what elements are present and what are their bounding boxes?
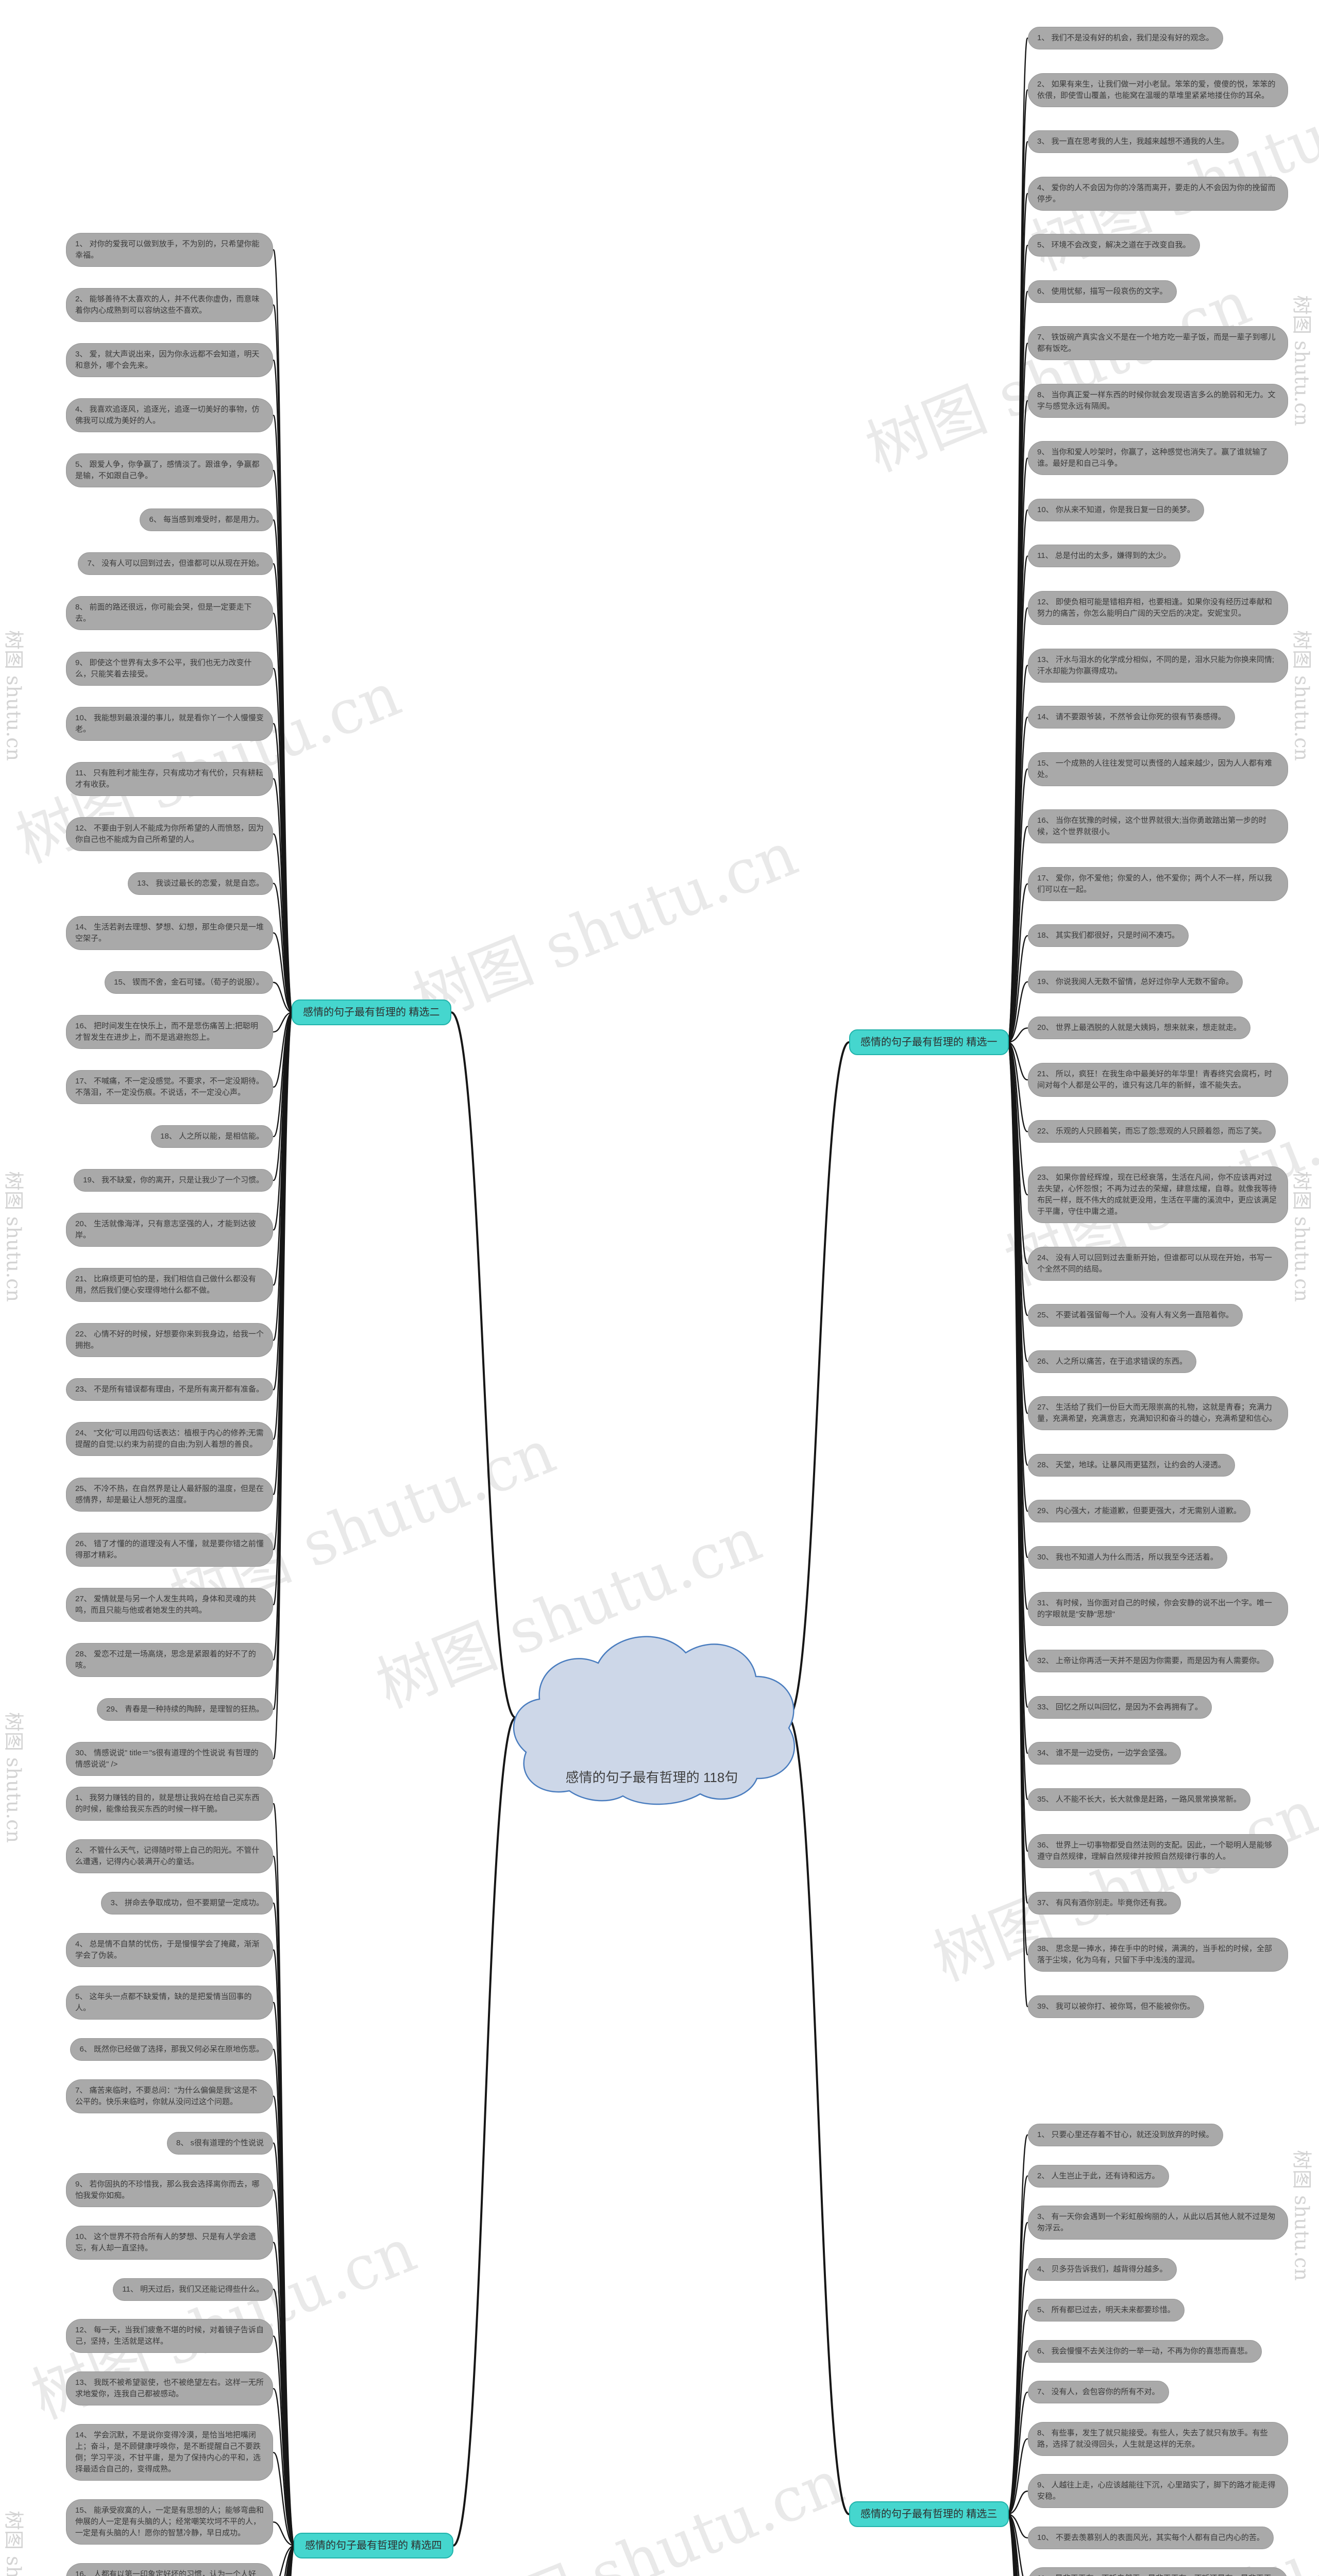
mindmap-node-text: 9、 人越往上走，心应该越能往下沉，心里踏实了，脚下的路才能走得安稳。 [1037,2481,1276,2501]
mindmap-node-text: 2、 不管什么天气，记得随时带上自己的阳光。不管什么遭遇，记得内心装满开心的童话… [75,1846,260,1866]
mindmap-node-text: 14、 请不要跟爷装，不然爷会让你死的很有节奏感得。 [1037,713,1226,721]
mindmap-node-text: 21、 所以，疯狂！在我生命中最美好的年华里！青春终究会腐朽，时间对每个人都是公… [1037,1070,1272,1090]
mindmap-node-text: 25、 不要试着强留每一个人。没有人有义务一直陪着你。 [1037,1311,1233,1319]
mindmap-node-text: 17、 不喊痛，不一定没感觉。不要求，不一定没期待。不落泪，不一定没伤痕。不说话… [75,1077,264,1097]
mindmap-node-text: 26、 人之所以痛苦，在于追求错误的东西。 [1037,1357,1187,1366]
mindmap-node-text: 8、 前面的路还很远，你可能会哭，但是一定要走下去。 [75,603,252,623]
mindmap-node[interactable]: 10、 这个世界不符合所有人的梦想、只是有人学会遗忘，有人却一直坚持。 [66,2226,273,2260]
mindmap-node[interactable]: 5、 所有都已过去，明天未来都要珍惜。 [1028,2299,1185,2321]
mindmap-node[interactable]: 15、 锲而不舍，金石可镂。（荀子的说服）。 [105,971,273,994]
mindmap-node[interactable]: 21、 所以，疯狂！在我生命中最美好的年华里！青春终究会腐朽，时间对每个人都是公… [1028,1063,1288,1097]
watermark: 树图 shutu.cn [2,630,30,761]
mindmap-node[interactable]: 19、 你说我阅人无数不留情，总好过你孕人无数不留命。 [1028,971,1243,993]
mindmap-node[interactable]: 16、 人都有以第一印象定好坏的习惯，认为一个人好时，就会爱屋及乌，认为一个人不… [66,2563,273,2576]
mindmap-node[interactable]: 10、 你从来不知道，你是我日复一日的美梦。 [1028,499,1204,521]
branch-node-best3[interactable]: 感情的句子最有哲理的 精选三 [849,2501,1009,2527]
mindmap-node-text: 23、 不是所有错误都有理由，不是所有离开都有准备。 [75,1385,264,1394]
mindmap-node-text: 9、 当你和爱人吵架时，你赢了，这种感觉也消失了。赢了谁就输了谁。最好是和自己斗… [1037,448,1268,468]
mindmap-node-text: 7、 痛苦来临时，不要总问："为什么偏偏是我"这是不公平的。快乐来临时，你就从没… [75,2086,257,2106]
mindmap-node[interactable]: 31、 有时候，当你面对自己的时候，你会安静的说不出一个字。唯一的字眼就是"安静… [1028,1592,1288,1626]
mindmap-node-text: 19、 我不缺爱，你的离开，只是让我少了一个习惯。 [83,1176,264,1184]
mindmap-node-text: 34、 谁不是一边受伤，一边学会坚强。 [1037,1749,1172,1757]
mindmap-node-text: 6、 我会慢慢不去关注你的一举一动，不再为你的喜悲而喜悲。 [1037,2347,1253,2355]
mindmap-node[interactable]: 4、 总是情不自禁的忧伤，于是慢慢学会了掩藏，渐渐学会了伪装。 [66,1933,273,1967]
branch-group-best3: 1、 只要心里还存着不甘心，就还没到放弃的时候。 2、 人生岂止于此，还有诗和远… [1028,2124,1288,2576]
mindmap-node[interactable]: 3、 拼命去争取成功，但不要期望一定成功。 [101,1892,273,1914]
mindmap-node-text: 16、 当你在犹豫的时候，这个世界就很大;当你勇敢踏出第一步的时候，这个世界就很… [1037,816,1266,836]
mindmap-node-text: 14、 生活若剥去理想、梦想、幻想，那生命便只是一堆空架子。 [75,923,264,943]
mindmap-node-text: 39、 我可以被你打、被你骂，但不能被你伤。 [1037,2002,1195,2011]
mindmap-node[interactable]: 12、 即使负相可能是错相弃相，也要相逢。如果你没有经历过奉献和努力的痛苦，你怎… [1028,591,1288,625]
mindmap-node-text: 1、 只要心里还存着不甘心，就还没到放弃的时候。 [1037,2130,1214,2139]
mindmap-node[interactable]: 22、 心情不好的时候，好想要你来到我身边，给我一个拥抱。 [66,1323,273,1357]
mindmap-node-text: 12、 不要由于别人不能成为你所希望的人而愤怒，因为你自己也不能成为自己所希望的… [75,824,264,844]
mindmap-node[interactable]: 12、 每一天，当我们疲惫不堪的时候，对着镜子告诉自己，坚持，生活就是这样。 [66,2319,273,2353]
mindmap-canvas: 树图 shutu.cn树图 shutu.cn树图 shutu.cn树图 shut… [0,0,1319,2576]
mindmap-node[interactable]: 36、 世界上一切事物都受自然法则的支配。因此，一个聪明人是能够遵守自然规律，理… [1028,1834,1288,1868]
mindmap-node[interactable]: 7、 没有人，会包容你的所有不对。 [1028,2381,1169,2403]
mindmap-node[interactable]: 27、 爱情就是与另一个人发生共鸣，身体和灵魂的共鸣，而且只能与他或者她发生的共… [66,1588,273,1622]
mindmap-node[interactable]: 14、 请不要跟爷装，不然爷会让你死的很有节奏感得。 [1028,706,1235,728]
mindmap-node[interactable]: 8、 当你真正爱一样东西的时候你就会发现语言多么的脆弱和无力。文字与感觉永远有隔… [1028,384,1288,418]
mindmap-node[interactable]: 18、 人之所以能，是相信能。 [151,1125,273,1148]
mindmap-node-text: 25、 不冷不热，在自然界是让人最舒服的温度，但是在感情界，却是最让人想死的温度… [75,1484,264,1504]
mindmap-node-text: 19、 你说我阅人无数不留情，总好过你孕人无数不留命。 [1037,977,1233,986]
mindmap-node-text: 32、 上帝让你再活一天并不是因为你需要，而是因为有人需要你。 [1037,1656,1264,1665]
mindmap-node[interactable]: 2、 不管什么天气，记得随时带上自己的阳光。不管什么遭遇，记得内心装满开心的童话… [66,1839,273,1873]
mindmap-node[interactable]: 16、 把时间发生在快乐上，而不是悲伤痛苦上;把聪明才智发生在进步上，而不是逃避… [66,1015,273,1049]
mindmap-node-text: 24、 "文化"可以用四句话表达：植根于内心的修养;无需提醒的自觉;以约束为前提… [75,1429,264,1449]
mindmap-node[interactable]: 10、 我能想到最浪漫的事儿，就是看你丫一个人慢慢变老。 [66,707,273,741]
mindmap-node[interactable]: 34、 谁不是一边受伤，一边学会坚强。 [1028,1742,1181,1765]
mindmap-node-text: 27、 爱情就是与另一个人发生共鸣，身体和灵魂的共鸣，而且只能与他或者她发生的共… [75,1595,256,1615]
branch-group-best4: 1、 我努力赚钱的目的，就是想让我妈在给自己买东西的时候，能像给我买东西的时候一… [66,1787,273,2576]
mindmap-node-text: 5、 这年头一点都不缺爱情，缺的是把爱情当回事的人。 [75,1992,252,2012]
mindmap-node-text: 22、 心情不好的时候，好想要你来到我身边，给我一个拥抱。 [75,1330,264,1350]
mindmap-node[interactable]: 11、 只有胜利才能生存，只有成功才有代价，只有耕耘才有收获。 [66,762,273,796]
mindmap-node-text: 8、 s很有道理的个性说说 [176,2139,264,2147]
mindmap-node[interactable]: 8、 s很有道理的个性说说 [167,2132,273,2155]
branch-node-best2[interactable]: 感情的句子最有哲理的 精选二 [292,999,451,1025]
mindmap-node[interactable]: 24、 没有人可以回到过去重新开始，但谁都可以从现在开始，书写一个全然不同的结局… [1028,1247,1288,1281]
mindmap-node-text: 38、 思念是一捧水，捧在手中的时候，满满的，当手松的时候，全部落于尘埃，化为乌… [1037,1944,1272,1964]
mindmap-node[interactable]: 7、 痛苦来临时，不要总问："为什么偏偏是我"这是不公平的。快乐来临时，你就从没… [66,2079,273,2113]
mindmap-node-text: 10、 这个世界不符合所有人的梦想、只是有人学会遗忘，有人却一直坚持。 [75,2232,256,2252]
mindmap-node[interactable]: 3、 有一天你会遇到一个彩虹般绚丽的人，从此以后其他人就不过是匆匆浮云。 [1028,2206,1288,2240]
mindmap-node[interactable]: 38、 思念是一捧水，捧在手中的时候，满满的，当手松的时候，全部落于尘埃，化为乌… [1028,1938,1288,1972]
mindmap-node-text: 27、 生活给了我们一份巨大而无限崇高的礼物，这就是青春；充满力量，充满希望，充… [1037,1403,1277,1423]
mindmap-node-text: 6、 既然你已经做了选择，那我又何必呆在原地伤悲。 [79,2045,264,2054]
mindmap-node[interactable]: 15、 能承受寂寞的人，一定是有思想的人；能够弯曲和伸展的人一定是有头脑的人；经… [66,2499,273,2545]
mindmap-node-text: 13、 我谈过最长的恋爱，就是自恋。 [137,879,264,888]
watermark: 树图 shutu.cn [2,1712,30,1843]
mindmap-node-text: 7、 没有人，会包容你的所有不对。 [1037,2387,1160,2396]
mindmap-node[interactable]: 13、 我既不被希望驱使，也不被绝望左右。这样一无所求地爱你，连我自己都被感动。 [66,2371,273,2405]
mindmap-node-text: 36、 世界上一切事物都受自然法则的支配。因此，一个聪明人是能够遵守自然规律，理… [1037,1841,1272,1861]
mindmap-node[interactable]: 1、 对你的爱我可以做到放手，不为别的，只希望你能幸福。 [66,233,273,267]
mindmap-node-text: 21、 比麻烦更可怕的是，我们相信自己做什么都没有用，然后我们便心安理得地什么都… [75,1275,256,1295]
mindmap-node[interactable]: 5、 环境不会改变，解决之道在于改变自我。 [1028,234,1200,257]
mindmap-node-text: 29、 内心强大，才能道歉，但要更强大，才无需别人道歉。 [1037,1506,1241,1515]
mindmap-node-text: 4、 爱你的人不会因为你的冷落而离开，要走的人不会因为你的挽留而停步。 [1037,183,1276,204]
mindmap-node[interactable]: 20、 生活就像海洋，只有意志坚强的人，才能到达彼岸。 [66,1213,273,1247]
mindmap-node[interactable]: 25、 不要试着强留每一个人。没有人有义务一直陪着你。 [1028,1304,1243,1327]
mindmap-node[interactable]: 17、 不喊痛，不一定没感觉。不要求，不一定没期待。不落泪，不一定没伤痕。不说话… [66,1070,273,1104]
mindmap-node[interactable]: 14、 生活若剥去理想、梦想、幻想，那生命便只是一堆空架子。 [66,916,273,950]
mindmap-node[interactable]: 13、 汗水与泪水的化学成分相似，不同的是，泪水只能为你换来同情;汗水却能为你赢… [1028,649,1288,683]
mindmap-node[interactable]: 35、 人不能不长大，长大就像是赶路，一路风景常换常新。 [1028,1788,1250,1811]
mindmap-node[interactable]: 6、 使用忧郁，描写一段哀伤的文字。 [1028,280,1177,303]
mindmap-node[interactable]: 25、 不冷不热，在自然界是让人最舒服的温度，但是在感情界，却是最让人想死的温度… [66,1478,273,1512]
mindmap-node[interactable]: 9、 人越往上走，心应该越能往下沉，心里踏实了，脚下的路才能走得安稳。 [1028,2474,1288,2508]
mindmap-node-text: 8、 当你真正爱一样东西的时候你就会发现语言多么的脆弱和无力。文字与感觉永远有隔… [1037,391,1276,411]
watermark: 树图 shutu.cn [2,1171,30,1302]
mindmap-node-text: 6、 使用忧郁，描写一段哀伤的文字。 [1037,287,1168,296]
mindmap-node[interactable]: 33、 回忆之所以叫回忆，是因为不会再拥有了。 [1028,1696,1212,1719]
mindmap-node[interactable]: 23、 如果你曾经辉煌，现在已经衰落，生活在凡间，你不应该再对过去失望，心怀怨恨… [1028,1166,1288,1223]
mindmap-node[interactable]: 4、 我喜欢追逐风，追逐光，追逐一切美好的事物，仿佛我可以成为美好的人。 [66,398,273,432]
mindmap-node[interactable]: 4、 爱你的人不会因为你的冷落而离开，要走的人不会因为你的挽留而停步。 [1028,177,1288,211]
mindmap-node[interactable]: 10、 不要去羡慕别人的表面风光，其实每个人都有自己内心的苦。 [1028,2527,1274,2549]
mindmap-node-text: 18、 人之所以能，是相信能。 [160,1132,264,1141]
mindmap-node-text: 16、 人都有以第一印象定好坏的习惯，认为一个人好时，就会爱屋及乌，认为一个人不… [75,2570,256,2576]
mindmap-node-text: 3、 有一天你会遇到一个彩虹般绚丽的人，从此以后其他人就不过是匆匆浮云。 [1037,2212,1276,2232]
mindmap-node-text: 10、 不要去羡慕别人的表面风光，其实每个人都有自己内心的苦。 [1037,2533,1264,2542]
mindmap-node[interactable]: 27、 生活给了我们一份巨大而无限崇高的礼物，这就是青春；充满力量，充满希望，充… [1028,1396,1288,1430]
mindmap-node[interactable]: 24、 "文化"可以用四句话表达：植根于内心的修养;无需提醒的自觉;以约束为前提… [66,1422,273,1456]
mindmap-node-text: 11、 是非天天有，不听自然无，是非天天有，不听还是有，是非天天有，看你怎么办? [1037,2574,1272,2576]
mindmap-node[interactable]: 28、 爱恋不过是一场高烧，思念是紧跟着的好不了的咳。 [66,1643,273,1677]
mindmap-node[interactable]: 11、 是非天天有，不听自然无，是非天天有，不听还是有，是非天天有，看你怎么办? [1028,2567,1288,2576]
mindmap-node-text: 12、 每一天，当我们疲惫不堪的时候，对着镜子告诉自己，坚持，生活就是这样。 [75,2326,264,2346]
mindmap-node[interactable]: 7、 铁饭碗产真实含义不是在一个地方吃一辈子饭，而是一辈子到哪儿都有饭吃。 [1028,326,1288,360]
mindmap-node-text: 5、 跟爱人争，你争赢了，感情淡了。跟谁争，争赢都是输，不如跟自己争。 [75,460,260,480]
branch-node-best1[interactable]: 感情的句子最有哲理的 精选一 [849,1029,1009,1055]
mindmap-node[interactable]: 18、 其实我们都很好，只是时间不凑巧。 [1028,924,1189,947]
mindmap-node-text: 18、 其实我们都很好，只是时间不凑巧。 [1037,931,1179,940]
mindmap-node[interactable]: 3、 爱，就大声说出来，因为你永远都不会知道，明天和意外，哪个会先来。 [66,343,273,377]
mindmap-node-text: 7、 没有人可以回到过去，但谁都可以从现在开始。 [87,559,264,568]
mindmap-node-text: 10、 我能想到最浪漫的事儿，就是看你丫一个人慢慢变老。 [75,714,264,734]
mindmap-node[interactable]: 5、 跟爱人争，你争赢了，感情淡了。跟谁争，争赢都是输，不如跟自己争。 [66,453,273,487]
watermark: 树图 shutu.cn [1290,295,1318,426]
mindmap-node[interactable]: 23、 不是所有错误都有理由，不是所有离开都有准备。 [66,1378,273,1401]
mindmap-node-text: 20、 生活就像海洋，只有意志坚强的人，才能到达彼岸。 [75,1219,256,1240]
mindmap-node-text: 11、 明天过后，我们又还能记得些什么。 [122,2285,264,2294]
mindmap-node-text: 15、 能承受寂寞的人，一定是有思想的人；能够弯曲和伸展的人一定是有头脑的人；经… [75,2506,264,2537]
mindmap-node-text: 28、 爱恋不过是一场高烧，思念是紧跟着的好不了的咳。 [75,1650,256,1670]
mindmap-node[interactable]: 17、 爱你，你不爱他；你爱的人，他不爱你；两个人不一样，所以我们可以在一起。 [1028,867,1288,901]
mindmap-node-text: 13、 汗水与泪水的化学成分相似，不同的是，泪水只能为你换来同情;汗水却能为你赢… [1037,655,1274,675]
mindmap-node[interactable]: 30、 情感说说" title＝"s很有道理的个性说说 有哲理的情感说说" /> [66,1742,273,1776]
branch-group-best2: 1、 对你的爱我可以做到放手，不为别的，只希望你能幸福。 2、 能够善待不太喜欢… [66,233,273,1776]
mindmap-node-text: 2、 能够善待不太喜欢的人，并不代表你虚伪，而意味着你内心成熟到可以容纳这些不喜… [75,295,260,315]
mindmap-node-text: 1、 我努力赚钱的目的，就是想让我妈在给自己买东西的时候，能像给我买东西的时候一… [75,1793,260,1814]
root-node[interactable]: 感情的句子最有哲理的 118句 [508,1627,796,1808]
mindmap-node[interactable]: 8、 有些事，发生了就只能接受。有些人，失去了就只有放手。有些路，选择了就没得回… [1028,2422,1288,2456]
mindmap-node-text: 15、 锲而不舍，金石可镂。（荀子的说服）。 [114,978,264,987]
mindmap-node-text: 4、 总是情不自禁的忧伤，于是慢慢学会了掩藏，渐渐学会了伪装。 [75,1940,260,1960]
mindmap-node[interactable]: 6、 既然你已经做了选择，那我又何必呆在原地伤悲。 [70,2038,273,2061]
mindmap-node-text: 2、 人生岂止于此，还有诗和远方。 [1037,2172,1160,2180]
mindmap-node-text: 7、 铁饭碗产真实含义不是在一个地方吃一辈子饭，而是一辈子到哪儿都有饭吃。 [1037,333,1276,353]
mindmap-node[interactable]: 13、 我谈过最长的恋爱，就是自恋。 [128,872,273,895]
mindmap-node-text: 13、 我既不被希望驱使，也不被绝望左右。这样一无所求地爱你，连我自己都被感动。 [75,2378,264,2398]
mindmap-node[interactable]: 1、 我们不是没有好的机会，我们是没有好的观念。 [1028,27,1223,49]
watermark: 树图 shutu.cn [444,2433,854,2576]
mindmap-node[interactable]: 8、 前面的路还很远，你可能会哭，但是一定要走下去。 [66,596,273,630]
watermark: 树图 shutu.cn [1290,2150,1318,2281]
mindmap-node-text: 9、 即使这个世界有太多不公平，我们也无力改变什么，只能笑着去接受。 [75,658,252,679]
mindmap-node-text: 12、 即使负相可能是错相弃相，也要相逢。如果你没有经历过奉献和努力的痛苦，你怎… [1037,598,1272,618]
mindmap-node[interactable]: 12、 不要由于别人不能成为你所希望的人而愤怒，因为你自己也不能成为自己所希望的… [66,817,273,851]
watermark: 树图 shutu.cn [2,2511,30,2576]
mindmap-node-text: 28、 天堂，地球。让暴风雨更猛烈，让约会的人浸透。 [1037,1461,1226,1469]
mindmap-node[interactable]: 20、 世界上最洒脱的人就是大姨妈，想来就来，想走就走。 [1028,1016,1250,1039]
mindmap-node-text: 23、 如果你曾经辉煌，现在已经衰落，生活在凡间，你不应该再对过去失望，心怀怨恨… [1037,1173,1277,1216]
mindmap-node-text: 10、 你从来不知道，你是我日复一日的美梦。 [1037,505,1195,514]
mindmap-node[interactable]: 39、 我可以被你打、被你骂，但不能被你伤。 [1028,1995,1204,2018]
mindmap-node[interactable]: 3、 我一直在思考我的人生，我越来越想不通我的人生。 [1028,130,1239,153]
mindmap-node[interactable]: 11、 明天过后，我们又还能记得些什么。 [113,2278,273,2301]
mindmap-node[interactable]: 9、 若你固执的不珍惜我，那么我会选择离你而去，哪怕我爱你如痴。 [66,2173,273,2207]
mindmap-node-text: 9、 若你固执的不珍惜我，那么我会选择离你而去，哪怕我爱你如痴。 [75,2180,260,2200]
mindmap-node-text: 31、 有时候，当你面对自己的时候，你会安静的说不出一个字。唯一的字眼就是"安静… [1037,1599,1272,1619]
mindmap-node[interactable]: 37、 有风有酒你别走。毕竟你还有我。 [1028,1892,1181,1914]
mindmap-node-text: 17、 爱你，你不爱他；你爱的人，他不爱你；两个人不一样，所以我们可以在一起。 [1037,874,1272,894]
mindmap-node-text: 24、 没有人可以回到过去重新开始，但谁都可以从现在开始，书写一个全然不同的结局… [1037,1253,1272,1274]
mindmap-node-text: 1、 对你的爱我可以做到放手，不为别的，只希望你能幸福。 [75,240,260,260]
mindmap-node[interactable]: 4、 贝多芬告诉我们，越背得分越多。 [1028,2258,1177,2281]
mindmap-node-text: 20、 世界上最洒脱的人就是大姨妈，想来就来，想走就走。 [1037,1023,1241,1032]
mindmap-node[interactable]: 29、 内心强大，才能道歉，但要更强大，才无需别人道歉。 [1028,1500,1250,1522]
mindmap-node[interactable]: 26、 人之所以痛苦，在于追求错误的东西。 [1028,1350,1196,1373]
mindmap-node[interactable]: 1、 只要心里还存着不甘心，就还没到放弃的时候。 [1028,2124,1223,2146]
mindmap-node[interactable]: 15、 一个成熟的人往往发觉可以责怪的人越来越少，因为人人都有难处。 [1028,752,1288,786]
mindmap-node-text: 29、 青春是一种持续的陶醉，是理智的狂热。 [106,1705,264,1714]
mindmap-node[interactable]: 6、 我会慢慢不去关注你的一举一动，不再为你的喜悲而喜悲。 [1028,2340,1262,2363]
watermark: 树图 shutu.cn [398,805,808,1039]
mindmap-node-text: 4、 贝多芬告诉我们，越背得分越多。 [1037,2265,1168,2274]
mindmap-node-text: 37、 有风有酒你别走。毕竟你还有我。 [1037,1899,1172,1907]
mindmap-node-text: 3、 爱，就大声说出来，因为你永远都不会知道，明天和意外，哪个会先来。 [75,350,260,370]
mindmap-node-text: 3、 我一直在思考我的人生，我越来越想不通我的人生。 [1037,137,1229,146]
mindmap-node[interactable]: 11、 总是付出的太多，嫌得到的太少。 [1028,545,1180,567]
mindmap-node-text: 11、 只有胜利才能生存，只有成功才有代价，只有耕耘才有收获。 [75,769,263,789]
mindmap-node-text: 11、 总是付出的太多，嫌得到的太少。 [1037,551,1171,560]
mindmap-node[interactable]: 26、 错了才懂的的道理没有人不懂，就是要你错之前懂得那才精彩。 [66,1533,273,1567]
mindmap-node[interactable]: 2、 如果有来生，让我们做一对小老鼠。笨笨的爱，傻傻的悦，笨笨的依偎，即使雪山覆… [1028,73,1288,107]
mindmap-node[interactable]: 1、 我努力赚钱的目的，就是想让我妈在给自己买东西的时候，能像给我买东西的时候一… [66,1787,273,1821]
mindmap-node[interactable]: 7、 没有人可以回到过去，但谁都可以从现在开始。 [78,552,273,575]
mindmap-node[interactable]: 16、 当你在犹豫的时候，这个世界就很大;当你勇敢踏出第一步的时候，这个世界就很… [1028,809,1288,843]
mindmap-node-text: 6、 每当感到难受时，都是用力。 [149,515,264,524]
watermark: 树图 shutu.cn [1290,1171,1318,1302]
mindmap-node[interactable]: 22、 乐观的人只顾着笑，而忘了怨;悲观的人只顾着怨，而忘了笑。 [1028,1120,1276,1143]
mindmap-node-text: 5、 所有都已过去，明天未来都要珍惜。 [1037,2306,1175,2314]
mindmap-node[interactable]: 9、 当你和爱人吵架时，你赢了，这种感觉也消失了。赢了谁就输了谁。最好是和自己斗… [1028,441,1288,475]
mindmap-node[interactable]: 19、 我不缺爱，你的离开，只是让我少了一个习惯。 [74,1169,273,1192]
mindmap-node[interactable]: 9、 即使这个世界有太多不公平，我们也无力改变什么，只能笑着去接受。 [66,652,273,686]
mindmap-node-text: 35、 人不能不长大，长大就像是赶路，一路风景常换常新。 [1037,1795,1241,1804]
mindmap-node-text: 15、 一个成熟的人往往发觉可以责怪的人越来越少，因为人人都有难处。 [1037,759,1272,779]
mindmap-node-text: 16、 把时间发生在快乐上，而不是悲伤痛苦上;把聪明才智发生在进步上，而不是逃避… [75,1022,258,1042]
mindmap-node-text: 14、 学会沉默，不是说你变得冷漠，是恰当地把嘴闭上；奋斗，是不顾健康呼唤你，是… [75,2431,261,2473]
mindmap-node[interactable]: 6、 每当感到难受时，都是用力。 [140,509,273,531]
mindmap-node[interactable]: 21、 比麻烦更可怕的是，我们相信自己做什么都没有用，然后我们便心安理得地什么都… [66,1268,273,1302]
mindmap-node[interactable]: 29、 青春是一种持续的陶醉，是理智的狂热。 [97,1698,273,1721]
mindmap-node-text: 8、 有些事，发生了就只能接受。有些人，失去了就只有放手。有些路，选择了就没得回… [1037,2429,1268,2449]
mindmap-node[interactable]: 5、 这年头一点都不缺爱情，缺的是把爱情当回事的人。 [66,1986,273,2020]
mindmap-node[interactable]: 28、 天堂，地球。让暴风雨更猛烈，让约会的人浸透。 [1028,1454,1235,1477]
mindmap-node-text: 2、 如果有来生，让我们做一对小老鼠。笨笨的爱，傻傻的悦，笨笨的依偎，即使雪山覆… [1037,80,1276,100]
root-node-label: 感情的句子最有哲理的 118句 [562,1768,742,1808]
mindmap-node-text: 26、 错了才懂的的道理没有人不懂，就是要你错之前懂得那才精彩。 [75,1539,264,1560]
mindmap-node[interactable]: 32、 上帝让你再活一天并不是因为你需要，而是因为有人需要你。 [1028,1650,1274,1672]
mindmap-node[interactable]: 2、 能够善待不太喜欢的人，并不代表你虚伪，而意味着你内心成熟到可以容纳这些不喜… [66,288,273,322]
branch-node-best4[interactable]: 感情的句子最有哲理的 精选四 [294,2533,453,2558]
mindmap-node-text: 4、 我喜欢追逐风，追逐光，追逐一切美好的事物，仿佛我可以成为美好的人。 [75,405,260,425]
mindmap-node[interactable]: 2、 人生岂止于此，还有诗和远方。 [1028,2165,1169,2188]
mindmap-node-text: 22、 乐观的人只顾着笑，而忘了怨;悲观的人只顾着怨，而忘了笑。 [1037,1127,1266,1136]
mindmap-node-text: 1、 我们不是没有好的机会，我们是没有好的观念。 [1037,33,1214,42]
mindmap-node[interactable]: 14、 学会沉默，不是说你变得冷漠，是恰当地把嘴闭上；奋斗，是不顾健康呼唤你，是… [66,2424,273,2481]
mindmap-node[interactable]: 30、 我也不知道人为什么而活，所以我至今还活着。 [1028,1546,1227,1569]
mindmap-node-text: 3、 拼命去争取成功，但不要期望一定成功。 [110,1899,264,1907]
watermark: 树图 shutu.cn [1290,630,1318,761]
mindmap-node-text: 5、 环境不会改变，解决之道在于改变自我。 [1037,241,1191,249]
mindmap-node-text: 33、 回忆之所以叫回忆，是因为不会再拥有了。 [1037,1703,1203,1711]
mindmap-node-text: 30、 我也不知道人为什么而活，所以我至今还活着。 [1037,1553,1218,1562]
branch-group-best1: 1、 我们不是没有好的机会，我们是没有好的观念。 2、 如果有来生，让我们做一对… [1028,27,1288,2018]
mindmap-node-text: 30、 情感说说" title＝"s很有道理的个性说说 有哲理的情感说说" /> [75,1749,259,1769]
